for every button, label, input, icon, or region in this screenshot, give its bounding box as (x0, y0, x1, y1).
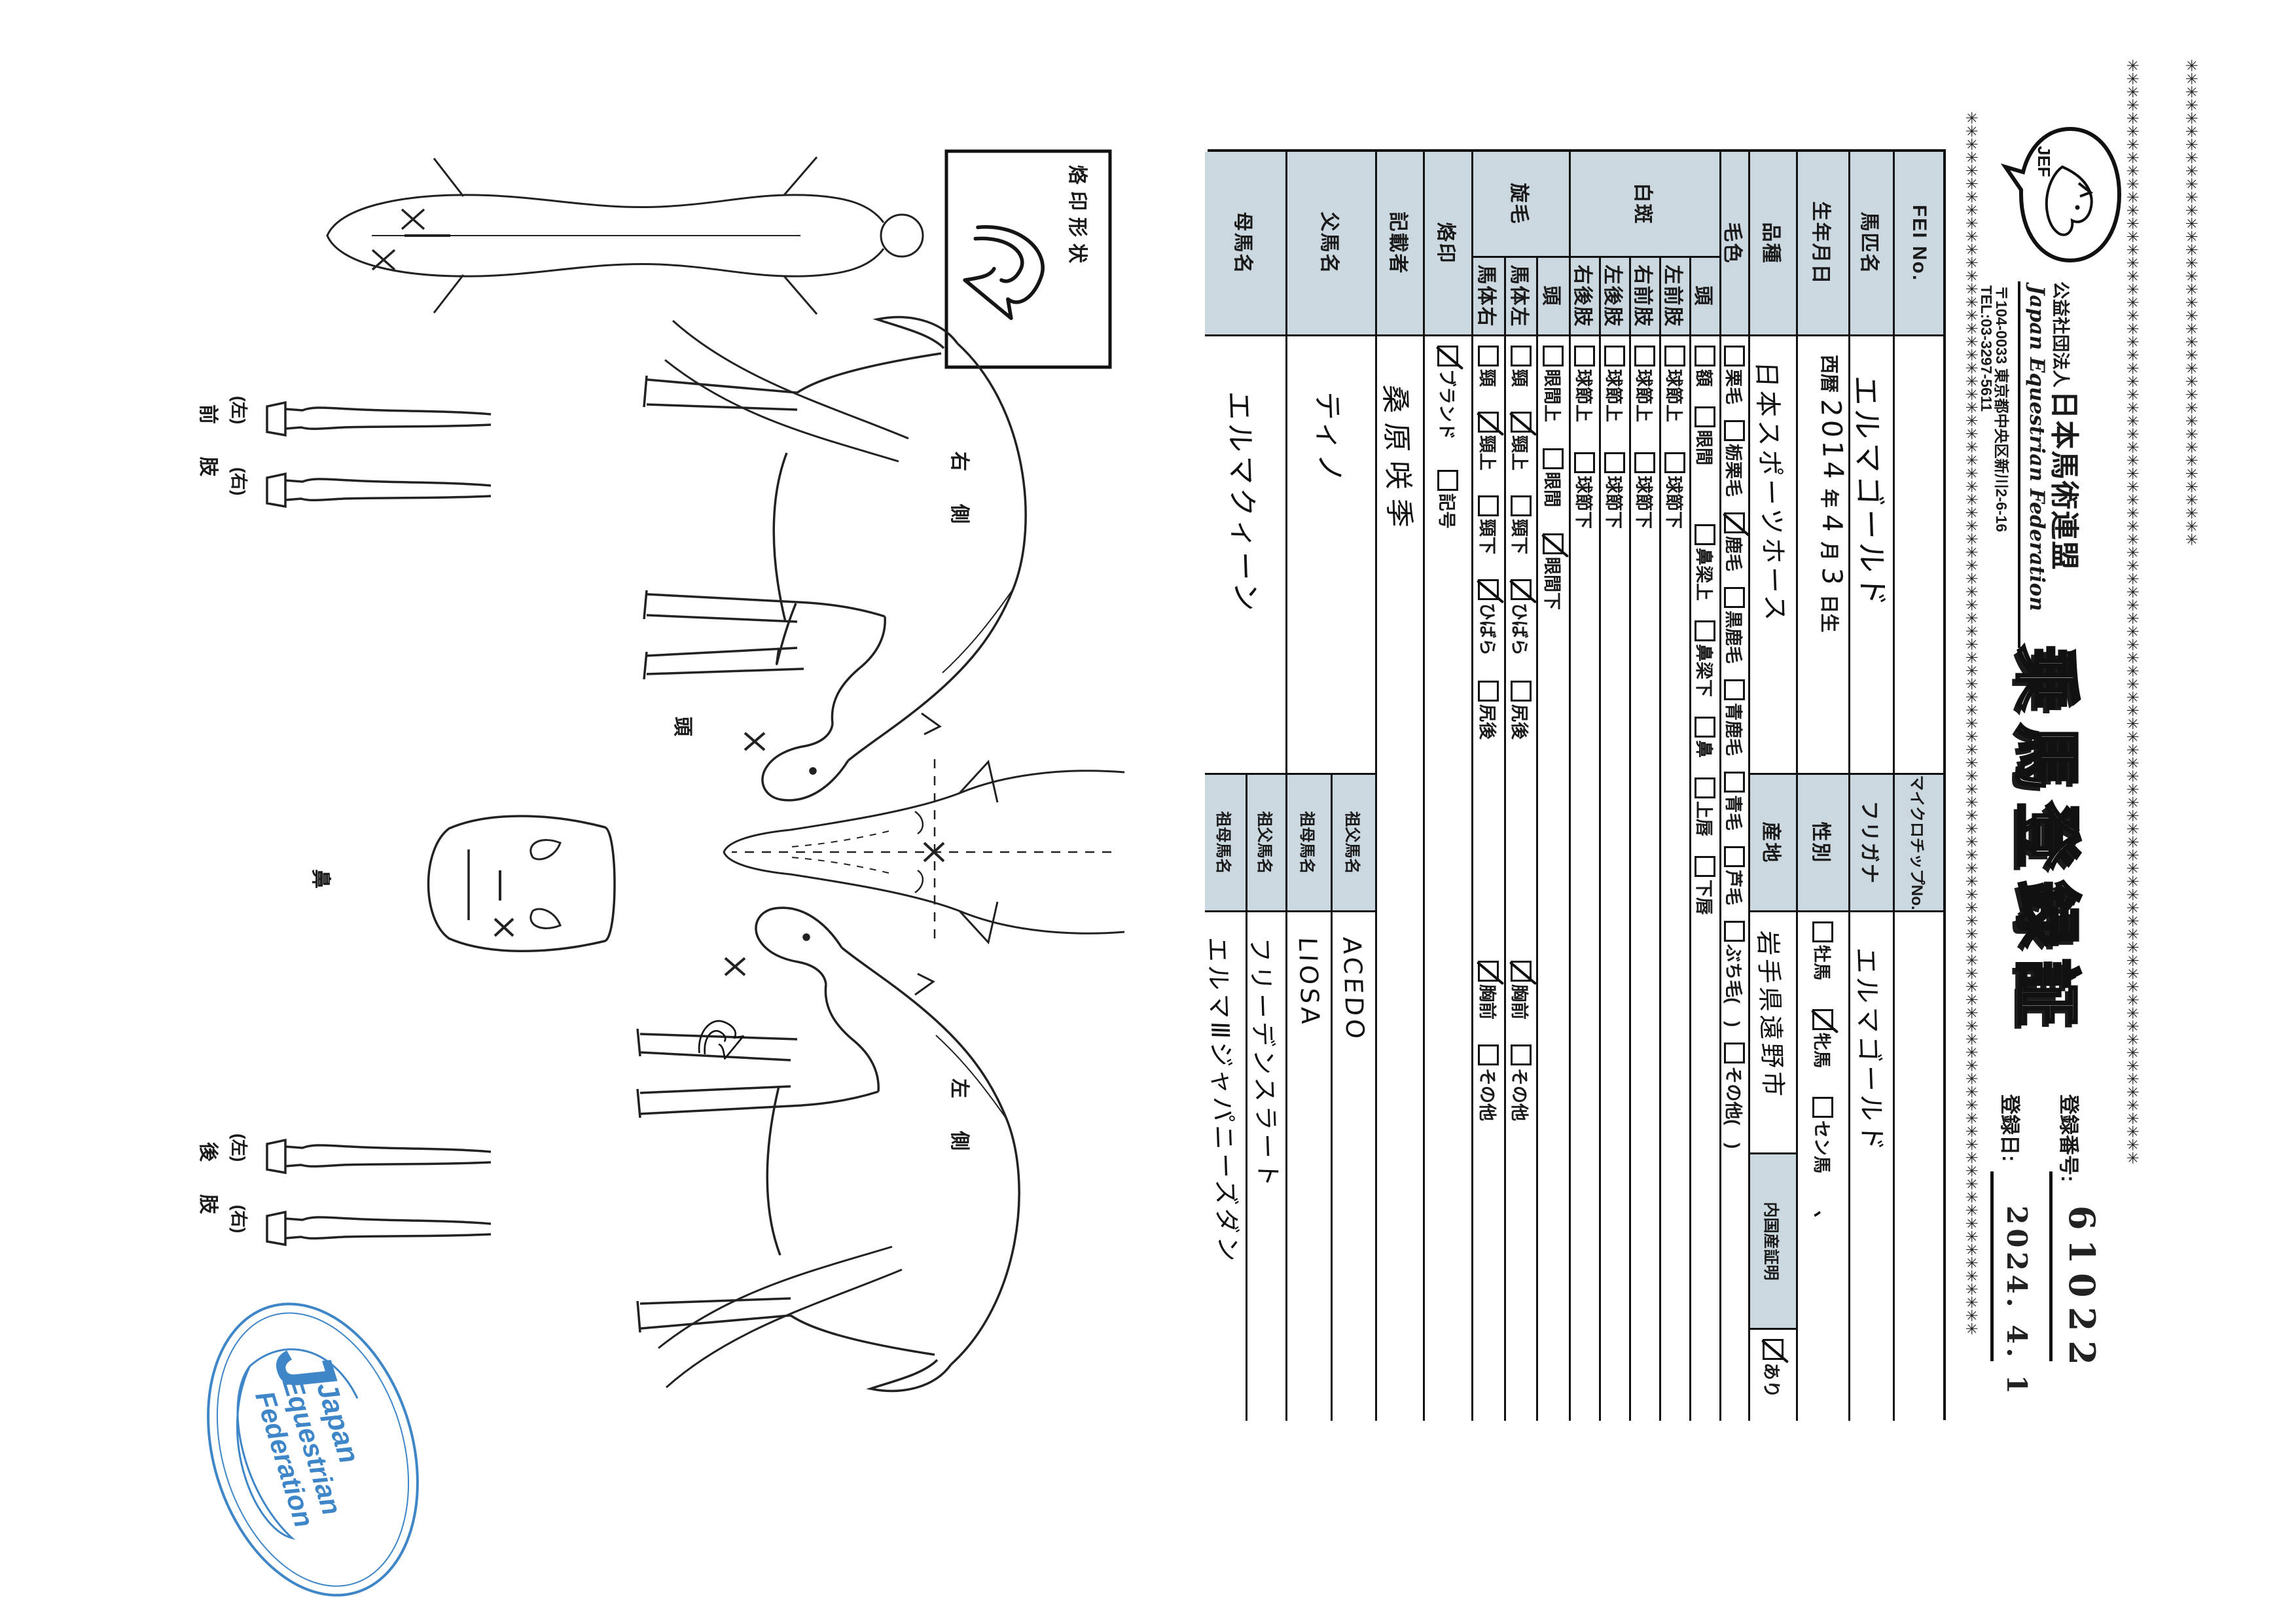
domestic-cert-item: あり (1761, 1339, 1786, 1398)
label-text: 毛色 (1721, 223, 1749, 264)
table-label-origin: 産地 (1748, 775, 1796, 912)
dam-sub-label: 祖母馬名 (1205, 775, 1246, 912)
checkbox (1695, 717, 1716, 738)
checkbox-label: 鼻梁下 (1693, 644, 1718, 697)
perforation-chain-top: ✳✳✳✳✳✳✳✳✳✳✳✳✳✳✳✳✳✳✳✳✳✳✳✳✳✳✳✳✳✳✳✳✳✳✳✳✳ (2181, 59, 2200, 622)
label-text: 母馬名 (1231, 212, 1260, 275)
whorls-item: 頸上 (1476, 412, 1501, 471)
coat-item: 黒鹿毛 (1722, 587, 1748, 664)
whorls-item: その他 (1509, 1044, 1534, 1121)
label-text: 祖母馬名 (1214, 811, 1237, 874)
whorls-item: ひばら (1509, 579, 1534, 656)
label-text: FEI No. (1908, 205, 1930, 281)
checkbox-label: 球節下 (1662, 476, 1688, 529)
checkbox-checked (1438, 346, 1459, 366)
checkbox-label: 黒鹿毛 (1722, 611, 1748, 664)
horse-name-cell: エルマゴールド (1848, 336, 1893, 775)
head-top-view-label: 頭 (672, 717, 693, 743)
checkbox-label: 頸下 (1476, 519, 1501, 554)
year-suffix: 年 (1817, 489, 1844, 508)
muzzle-front-view (429, 816, 615, 951)
label-text: フリガナ (1857, 801, 1886, 885)
checkbox (1635, 452, 1656, 473)
whorls-item: ひばら (1476, 579, 1501, 656)
table-label-birthdate: 生年月日 (1796, 152, 1848, 336)
sex-handwritten-mark: 、 (1807, 1209, 1839, 1234)
checkbox-label: 頸下 (1509, 519, 1534, 554)
sire-sub-value: LIOSA (1293, 936, 1325, 1028)
checkbox-label: ひばら (1476, 603, 1501, 656)
table-label-sire: 父馬名 (1285, 152, 1375, 336)
checkbox (1605, 346, 1626, 366)
coat-item: 青毛 (1722, 772, 1748, 830)
checkbox (1479, 495, 1499, 516)
white-markings-item: 球節下 (1632, 452, 1658, 529)
checkbox (1813, 921, 1834, 942)
table-label-domestic-cert: 内国産証明 (1748, 1154, 1796, 1330)
breed-cell: 日本スポーツホース (1748, 336, 1796, 775)
horse-head-top-view (724, 759, 1124, 946)
domestic-cert-cell: あり (1748, 1330, 1796, 1421)
birthdate-cell: 西暦2014年4月3日生 (1796, 336, 1848, 775)
checkbox (1575, 346, 1596, 366)
whorls-row-label: 馬体左 (1504, 258, 1536, 336)
perforation-chain-mid: ✳✳✳✳✳✳✳✳✳✳✳✳✳✳✳✳✳✳✳✳✳✳✳✳✳✳✳✳✳✳✳✳✳✳✳✳✳✳✳✳… (2122, 59, 2142, 1329)
checkbox-label: 芦毛 (1722, 870, 1748, 905)
sex-item: 牝馬 (1810, 1009, 1836, 1068)
label-text: 頭 (1539, 286, 1568, 307)
checkbox-checked (1479, 412, 1499, 433)
hind-limb-left-label: (左) (229, 1133, 249, 1162)
label-text: 馬匹名 (1857, 212, 1886, 275)
white-markings-row-cell: 球節上球節下 (1569, 336, 1599, 1421)
checkbox-label: 鼻梁上 (1693, 548, 1718, 601)
sire-sub-value: ACEDO (1338, 936, 1371, 1042)
label-text: 左後肢 (1601, 265, 1630, 328)
checkbox-label: 額 (1693, 369, 1718, 387)
checkbox (1511, 495, 1532, 516)
right-side-label: 右 側 (948, 452, 970, 530)
coat-item: 青鹿毛 (1722, 679, 1748, 756)
label-text: 祖父馬名 (1342, 811, 1365, 874)
checkbox-label: 青毛 (1722, 795, 1748, 830)
checkbox (1605, 452, 1626, 473)
checkbox-label: その他 (1476, 1068, 1501, 1121)
checkbox-label: セン馬 (1810, 1120, 1836, 1173)
table-label-sex: 性別 (1796, 775, 1848, 912)
checkbox-label: その他 (1509, 1068, 1534, 1121)
checkbox (1665, 346, 1686, 366)
checkbox (1695, 346, 1716, 366)
checkbox-label: 球節下 (1602, 476, 1628, 529)
brand-shape-label: 烙印形状 (1066, 165, 1088, 270)
birth-day: 3 (1816, 567, 1848, 588)
white-markings-row-label: 左前肢 (1659, 258, 1689, 336)
scanned-certificate: ✳✳✳✳✳✳✳✳✳✳✳✳✳✳✳✳✳✳✳✳✳✳✳✳✳✳✳✳✳✳✳✳✳✳✳✳✳ ✳✳… (0, 0, 2296, 1623)
label-text: 生年月日 (1809, 202, 1838, 285)
white-markings-row-cell: 球節上球節下 (1599, 336, 1629, 1421)
sire-cell: ティノ (1285, 336, 1375, 775)
table-label-horse-name: 馬匹名 (1848, 152, 1893, 336)
checkbox-label: 頸 (1509, 369, 1534, 387)
certificate-title: 乗馬登録証 (2003, 645, 2100, 1037)
whorls-item: 眼間上 (1541, 346, 1566, 422)
writer-value: 桑原咲季 (1376, 384, 1424, 537)
checkbox-checked (1479, 961, 1499, 982)
month-suffix: 月 (1817, 542, 1844, 561)
whorls-item: 尻後 (1509, 681, 1534, 740)
checkbox (1511, 346, 1532, 366)
horse-diagram-area: 烙印形状 (0, 0, 1183, 1623)
checkbox-label: 記号 (1435, 493, 1461, 529)
logo-bubble-outline (2005, 129, 2119, 260)
registration-table: FEI No.マイクロチップNo.馬匹名エルマゴールドフリガナエルマゴールド生年… (1208, 149, 1946, 1420)
checkbox (1695, 406, 1716, 427)
checkbox-label: 尻後 (1509, 704, 1534, 740)
checkbox-label: 頸上 (1476, 435, 1501, 471)
label-text: 右前肢 (1631, 265, 1660, 328)
checkbox-label: 胸前 (1509, 984, 1534, 1020)
dam-cell: エルマクィーン (1205, 336, 1285, 775)
white-markings-row-label: 頭 (1689, 258, 1719, 336)
checkbox-checked (1543, 533, 1564, 554)
checkbox-label: ひばら (1509, 603, 1534, 656)
checkbox-label: 球節上 (1632, 369, 1658, 422)
dam-sub-label: 祖父馬名 (1246, 775, 1285, 912)
label-text: 左前肢 (1661, 265, 1690, 328)
checkbox-checked (1479, 579, 1499, 600)
reg-no-value: 61022 (2061, 1205, 2103, 1374)
table-label-fei: FEI No. (1893, 152, 1943, 336)
dam-sub-value: フリーデンスラート (1244, 936, 1289, 1190)
table-label-coat: 毛色 (1719, 152, 1748, 336)
checkbox-checked (1763, 1339, 1784, 1360)
org-address: 〒104-0033 東京都中央区新川2-6-16 (1992, 285, 2014, 532)
brand-shape-box: 烙印形状 (946, 151, 1110, 367)
checkbox-label: 球節上 (1662, 369, 1688, 422)
front-limb-label: 前 肢 (197, 404, 219, 483)
checkbox-label: 牡馬 (1810, 945, 1836, 980)
checkbox-checked (1813, 1009, 1834, 1030)
checkbox-label: あり (1761, 1363, 1786, 1398)
horse-right-side-view (644, 317, 1026, 800)
white-markings-item: 球節上 (1602, 346, 1628, 422)
checkbox (1479, 346, 1499, 366)
sex-item: 牡馬 (1810, 921, 1836, 980)
hind-limb-label: 後 肢 (197, 1142, 219, 1221)
checkbox-label: 球節上 (1572, 369, 1598, 422)
white-markings-item: 下唇 (1693, 856, 1718, 915)
whorls-item: 胸前 (1476, 961, 1501, 1020)
table-label-writer: 記載者 (1375, 152, 1423, 336)
whorls-item: 尻後 (1476, 681, 1501, 740)
checkbox (1695, 620, 1716, 641)
white-markings-row-label: 右後肢 (1569, 258, 1599, 336)
furigana-value: エルマゴールド (1849, 947, 1894, 1154)
certificate-page: ✳✳✳✳✳✳✳✳✳✳✳✳✳✳✳✳✳✳✳✳✳✳✳✳✳✳✳✳✳✳✳✳✳✳✳✳✳ ✳✳… (0, 0, 2296, 1623)
brand-item: ブランド (1435, 346, 1461, 440)
front-limbs (267, 402, 491, 507)
brand-symbol (965, 227, 1043, 318)
label-text: 馬体右 (1475, 265, 1503, 328)
whorls-row-label: 馬体右 (1471, 258, 1504, 336)
label-text: 頭 (1691, 286, 1720, 307)
sire-sub-cell: ACEDO (1331, 912, 1375, 1421)
label-text: マイクロチップNo. (1908, 775, 1931, 910)
label-text: 記載者 (1386, 212, 1414, 275)
whorls-row-cell: 眼間上眼間眼間下 (1536, 336, 1569, 1421)
white-markings-item: 球節上 (1662, 346, 1688, 422)
checkbox-label: 青鹿毛 (1722, 703, 1748, 756)
white-markings-item: 上唇 (1693, 777, 1718, 836)
breed-value: 日本スポーツホース (1749, 361, 1797, 625)
org-type: 公益社団法人 (2051, 281, 2070, 387)
whorls-item: 頸上 (1509, 412, 1534, 471)
checkbox (1635, 346, 1656, 366)
label-text: 旋毛 (1507, 183, 1535, 225)
checkbox (1725, 346, 1746, 366)
checkbox-label: 眼間 (1541, 472, 1566, 507)
label-text: 祖父馬名 (1255, 811, 1278, 874)
coat-item: 栃栗毛 (1722, 420, 1748, 497)
checkbox (1575, 452, 1596, 473)
checkbox-label: 眼間 (1693, 430, 1718, 465)
reg-no-underline (2049, 1171, 2053, 1361)
day-suffix: 日生 (1817, 594, 1844, 632)
checkbox (1725, 587, 1746, 608)
logo-jef-text: JEF (2034, 146, 2054, 177)
checkbox-label: 鹿毛 (1722, 536, 1748, 571)
writer-cell: 桑原咲季 (1375, 336, 1423, 1421)
federation-stamp: J Japan Equestrian Federation (174, 1278, 452, 1622)
microchip-value-cell (1893, 912, 1943, 1421)
white-markings-item: 球節下 (1572, 452, 1598, 529)
checkbox (1695, 856, 1716, 877)
checkbox-label: 上唇 (1693, 801, 1718, 836)
whorls-item: その他 (1476, 1044, 1501, 1121)
checkbox (1725, 921, 1746, 942)
left-side-label: 左 側 (948, 1079, 970, 1157)
coat-item: 鹿毛 (1722, 512, 1748, 571)
sex-item: セン馬 (1810, 1097, 1836, 1173)
checkbox-label: 球節下 (1632, 476, 1658, 529)
sire-sub-cell: LIOSA (1285, 912, 1331, 1421)
checkbox-label: その他( ) (1722, 1066, 1748, 1149)
label-text: 馬体左 (1507, 265, 1535, 328)
checkbox (1543, 448, 1564, 469)
checkbox-label: 牝馬 (1810, 1033, 1836, 1068)
brand-item: 記号 (1435, 470, 1461, 529)
label-text: 性別 (1809, 822, 1838, 864)
whorls-row-cell: 頸頸上頸下ひばら尻後胸前その他 (1471, 336, 1504, 1421)
table-label-brand: 烙印 (1423, 152, 1471, 336)
whorls-item: 胸前 (1509, 961, 1534, 1020)
reg-date-value: 2024. 4. 1 (2001, 1205, 2033, 1398)
checkbox-label: 栃栗毛 (1722, 444, 1748, 497)
white-markings-row-cell: 球節上球節下 (1659, 336, 1689, 1421)
checkbox-label: 眼間上 (1541, 369, 1566, 422)
hind-limb-right-label: (右) (229, 1205, 249, 1233)
label-text: 内国産証明 (1762, 1202, 1785, 1281)
coat-item: その他( ) (1722, 1043, 1748, 1149)
coat-item: ぶち毛( ) (1722, 921, 1748, 1027)
white-markings-row-cell: 球節上球節下 (1629, 336, 1659, 1421)
dam-sub-cell: フリーデンスラート (1246, 912, 1285, 1421)
checkbox-checked (1725, 512, 1746, 533)
whorls-row-cell: 頸頸上頸下ひばら尻後胸前その他 (1504, 336, 1536, 1421)
whorls-item: 頸下 (1509, 495, 1534, 554)
front-limb-left-label: (左) (229, 396, 249, 424)
reg-date-underline (1990, 1171, 1994, 1361)
era-prefix: 西暦 (1817, 355, 1844, 393)
whorls-item: 眼間下 (1541, 533, 1566, 610)
white-markings-item: 球節下 (1602, 452, 1628, 529)
sire-value: ティノ (1308, 391, 1354, 487)
checkbox-label: 頸 (1476, 369, 1501, 387)
checkbox-label: 頸上 (1509, 435, 1534, 471)
brand-cell: ブランド記号 (1423, 336, 1471, 1421)
furigana-cell: エルマゴールド (1848, 912, 1893, 1421)
label-text: 右後肢 (1571, 265, 1600, 328)
birth-year: 2014 (1815, 399, 1850, 483)
fei-value-cell (1893, 336, 1943, 775)
checkbox (1695, 777, 1716, 798)
org-name: 日本馬術連盟 (2048, 390, 2080, 571)
white-markings-item: 鼻梁上 (1693, 524, 1718, 601)
sire-sub-label: 祖母馬名 (1285, 775, 1331, 912)
whorls-item: 眼間 (1541, 448, 1566, 507)
jef-logo: JEF (1997, 121, 2125, 268)
white-markings-item: 鼻梁下 (1693, 620, 1718, 697)
checkbox-label: 胸前 (1476, 984, 1501, 1020)
white-markings-item: 球節上 (1572, 346, 1598, 422)
white-markings-row-label: 左後肢 (1599, 258, 1629, 336)
white-markings-item: 鼻 (1693, 717, 1718, 758)
origin-cell: 岩手県遠野市 (1748, 912, 1796, 1154)
checkbox (1695, 524, 1716, 545)
coat-item: 芦毛 (1722, 846, 1748, 905)
hind-limbs (267, 1140, 491, 1245)
checkbox-label: 下唇 (1693, 880, 1718, 915)
checkbox (1543, 346, 1564, 366)
checkbox-checked (1511, 579, 1532, 600)
sex-cell: 牡馬牝馬セン馬、 (1796, 912, 1848, 1421)
muzzle-label: 鼻 (310, 869, 331, 895)
horse-top-view (327, 157, 923, 314)
label-text: 品種 (1759, 223, 1787, 264)
checkbox-label: 球節上 (1602, 369, 1628, 422)
checkbox (1725, 420, 1746, 441)
checkbox (1725, 846, 1746, 867)
checkbox (1438, 470, 1459, 491)
whorls-item: 頸 (1476, 346, 1501, 387)
label-text: 白斑 (1631, 183, 1660, 225)
white-markings-item: 眼間 (1693, 406, 1718, 465)
dam-sub-value: エルマⅢジャパニーズダン (1202, 936, 1249, 1265)
checkbox (1813, 1097, 1834, 1118)
reg-date-label: 登録日: (1997, 1094, 2026, 1162)
checkbox (1725, 772, 1746, 793)
checkbox (1511, 681, 1532, 702)
whorls-item: 頸 (1509, 346, 1534, 387)
birth-month: 4 (1816, 514, 1848, 535)
checkbox (1479, 1044, 1499, 1065)
checkbox-label: 尻後 (1476, 704, 1501, 740)
white-markings-row-cell: 額眼間鼻梁上鼻梁下鼻上唇下唇 (1689, 336, 1719, 1421)
dam-sub-cell: エルマⅢジャパニーズダン (1205, 912, 1246, 1421)
label-text: 産地 (1759, 822, 1787, 864)
white-markings-item: 球節下 (1662, 452, 1688, 529)
table-label-microchip: マイクロチップNo. (1893, 775, 1943, 912)
sire-sub-label: 祖父馬名 (1331, 775, 1375, 912)
label-text: 烙印 (1434, 223, 1463, 264)
dam-value: エルマクィーン (1220, 391, 1270, 615)
whorls-row-label: 頭 (1536, 258, 1569, 336)
checkbox-label: 球節下 (1572, 476, 1598, 529)
checkbox-checked (1511, 961, 1532, 982)
org-divider (2018, 281, 2020, 648)
table-label-breed: 品種 (1748, 152, 1796, 336)
label-text: 祖母馬名 (1298, 811, 1321, 874)
coat-item: 栗毛 (1722, 346, 1748, 404)
checkbox (1665, 452, 1686, 473)
checkbox (1725, 679, 1746, 700)
brand-mark-on-horse (699, 1021, 743, 1059)
checkbox-checked (1511, 412, 1532, 433)
checkbox (1479, 681, 1499, 702)
horse-name-value: エルマゴールド (1846, 375, 1897, 610)
section-label-whorls: 旋毛 (1471, 152, 1569, 258)
table-label-dam: 母馬名 (1205, 152, 1285, 336)
label-text: 父馬名 (1317, 212, 1346, 275)
coat-cell: 栗毛栃栗毛鹿毛黒鹿毛青鹿毛青毛芦毛ぶち毛( )その他( ) (1719, 336, 1748, 1421)
checkbox (1725, 1043, 1746, 1063)
white-markings-row-label: 右前肢 (1629, 258, 1659, 336)
checkbox-label: ブランド (1435, 369, 1461, 440)
white-markings-item: 球節上 (1632, 346, 1658, 422)
white-markings-item: 額 (1693, 346, 1718, 387)
section-label-white-markings: 白斑 (1569, 152, 1719, 258)
table-label-furigana: フリガナ (1848, 775, 1893, 912)
checkbox-label: 鼻 (1693, 740, 1718, 758)
checkbox-label: ぶち毛( ) (1722, 944, 1748, 1027)
checkbox-label: 眼間下 (1541, 557, 1566, 610)
org-tel: TEL:03-3297-5611 (1977, 285, 1995, 412)
org-name-en: Japan Equestrian Federation (2025, 285, 2049, 611)
checkbox-label: 栗毛 (1722, 369, 1748, 404)
origin-value: 岩手県遠野市 (1752, 930, 1794, 1100)
whorls-item: 頸下 (1476, 495, 1501, 554)
logo-horse-eye (2075, 205, 2080, 210)
front-limb-right-label: (右) (229, 467, 249, 495)
checkbox (1511, 1044, 1532, 1065)
reg-no-label: 登録番号: (2056, 1094, 2085, 1182)
